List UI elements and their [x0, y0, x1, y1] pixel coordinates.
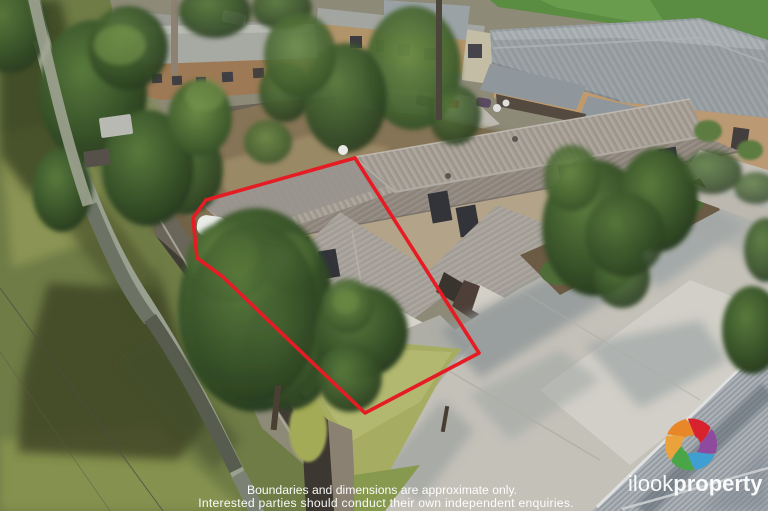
- svg-text:ilookproperty: ilookproperty: [628, 471, 763, 496]
- svg-text:Interested parties should cond: Interested parties should conduct their …: [198, 496, 574, 510]
- svg-text:Boundaries and dimensions are: Boundaries and dimensions are approximat…: [247, 483, 517, 497]
